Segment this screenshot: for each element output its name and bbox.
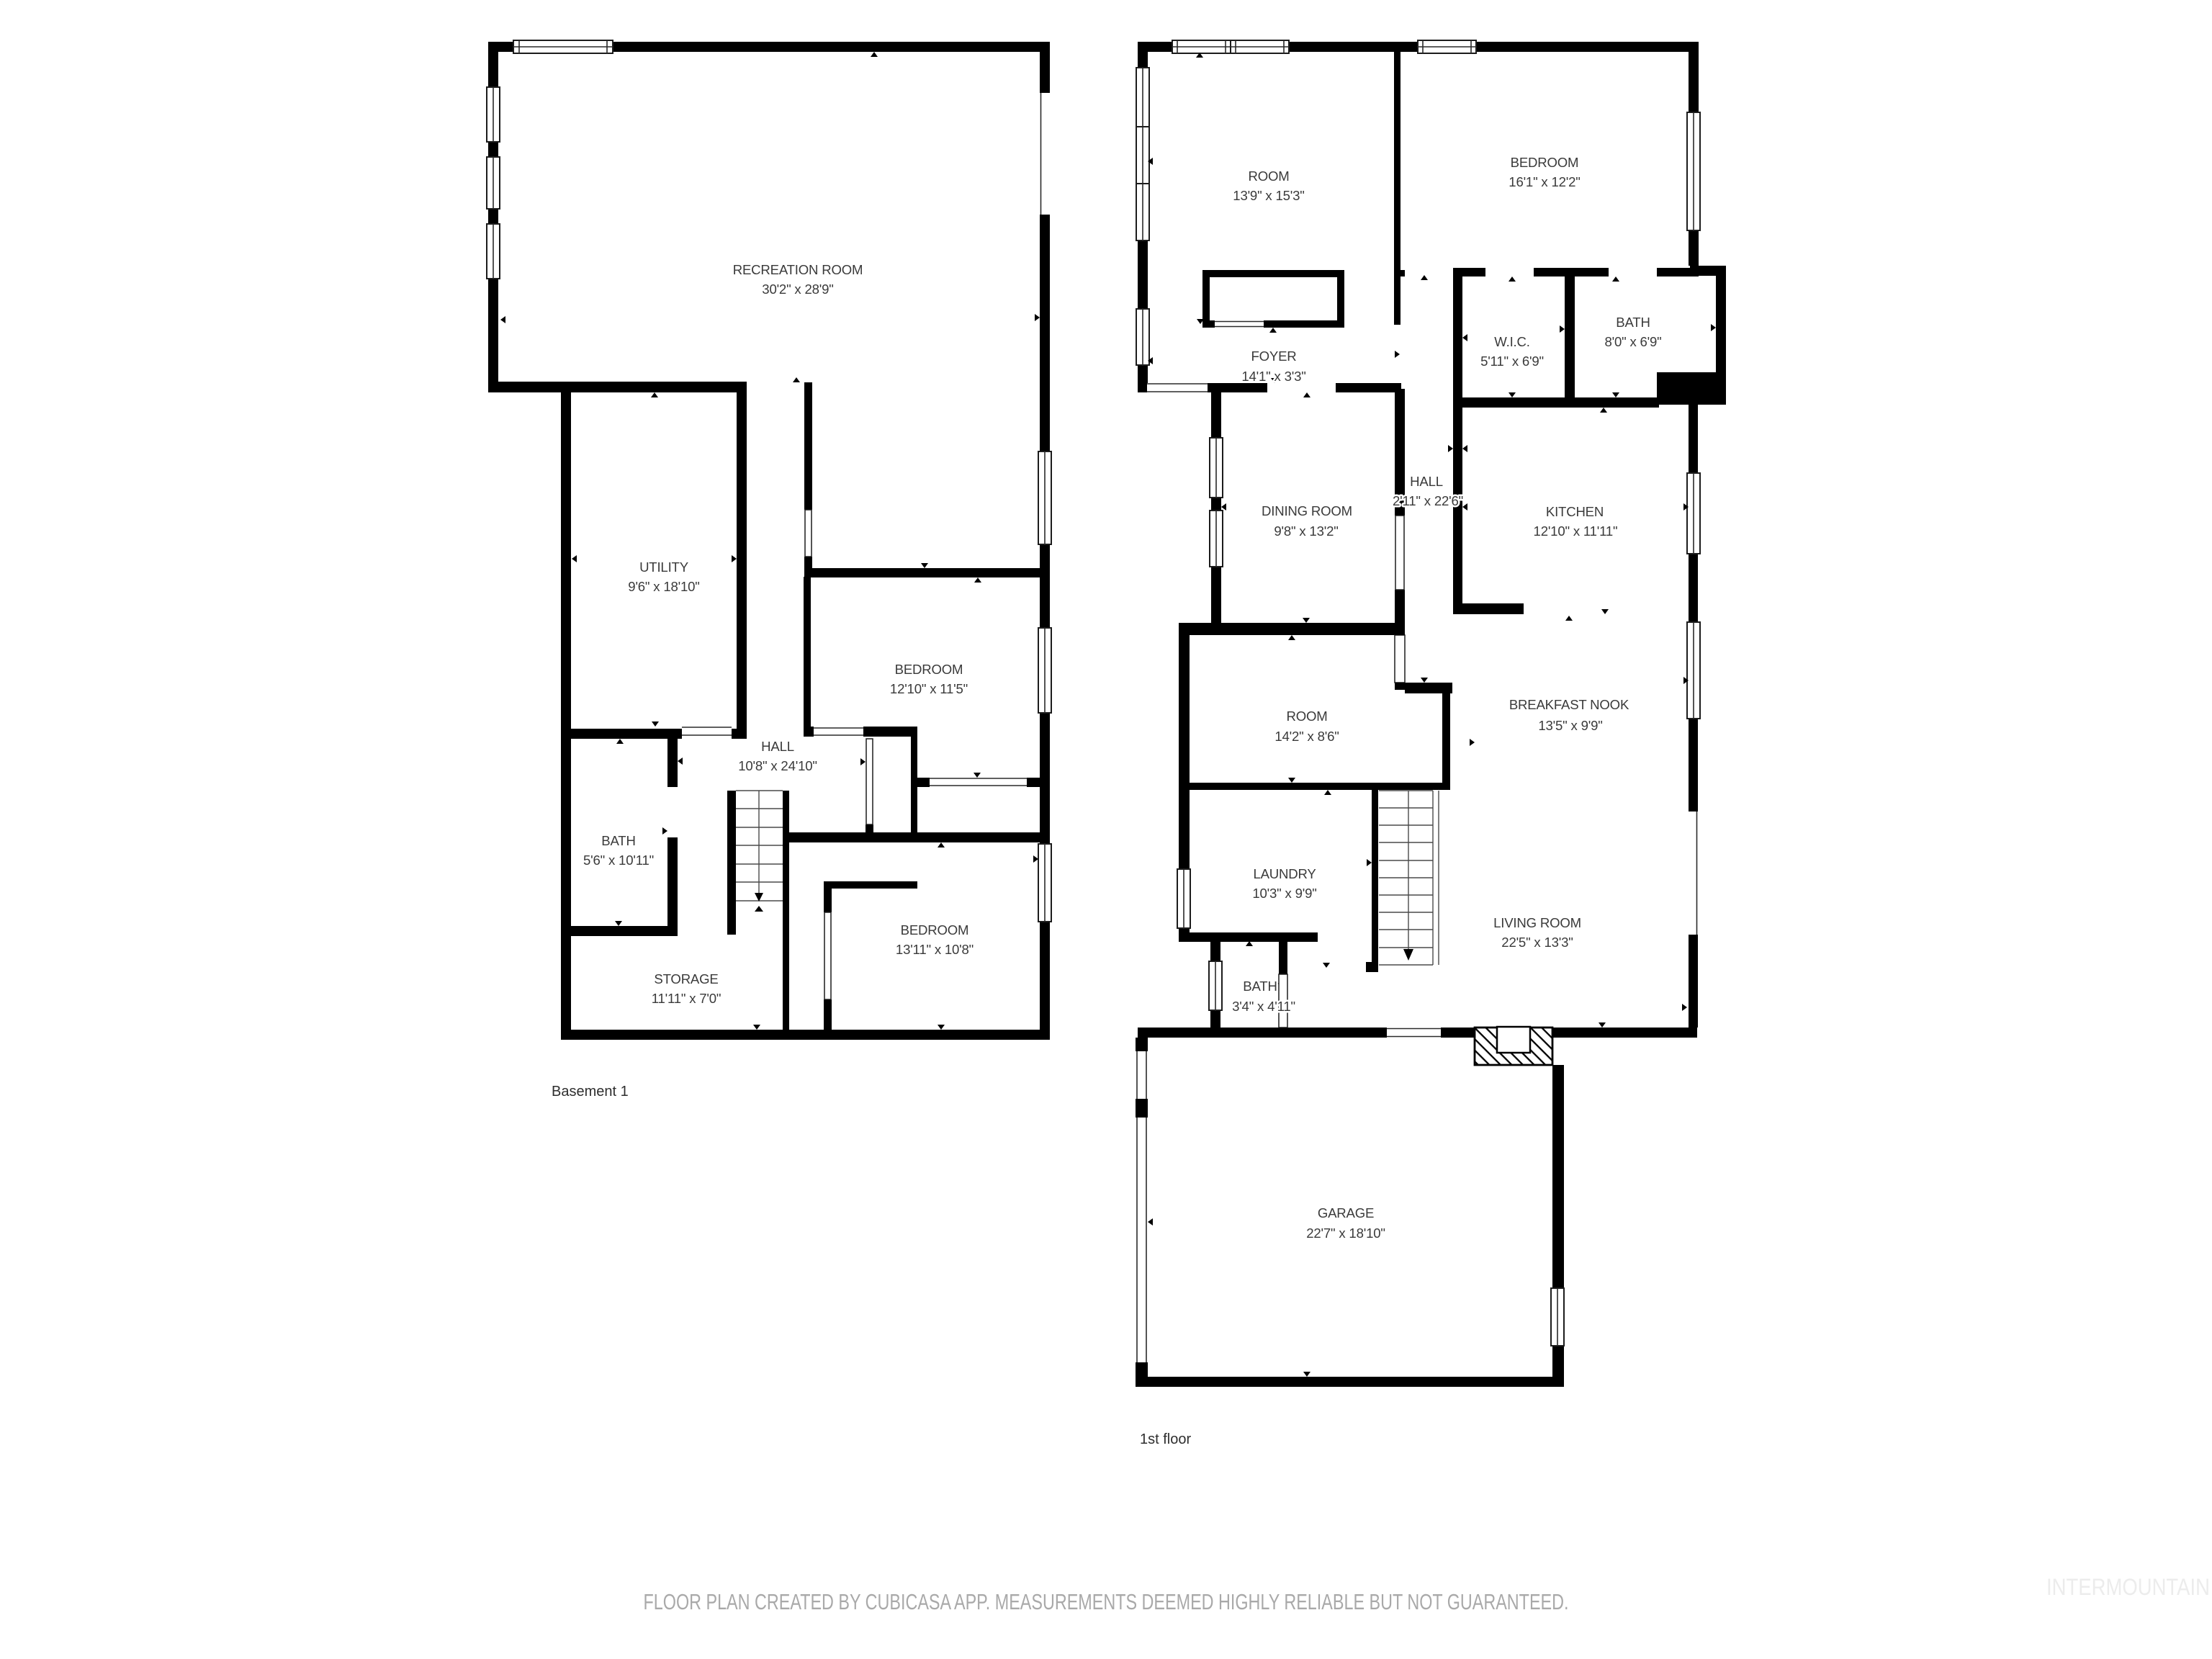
svg-text:FLOOR PLAN CREATED BY CUBICASA: FLOOR PLAN CREATED BY CUBICASA APP. MEAS… [644, 1589, 1569, 1614]
svg-text:13'11" x 10'8": 13'11" x 10'8" [896, 942, 974, 957]
svg-text:12'10" x 11'5": 12'10" x 11'5" [890, 681, 968, 696]
svg-text:12'10" x 11'11": 12'10" x 11'11" [1534, 523, 1618, 539]
svg-text:13'9" x 15'3": 13'9" x 15'3" [1233, 188, 1304, 203]
svg-text:UTILITY: UTILITY [639, 559, 688, 575]
svg-text:RECREATION ROOM: RECREATION ROOM [733, 262, 863, 277]
svg-text:22'5" x 13'3": 22'5" x 13'3" [1501, 935, 1573, 950]
svg-text:BATH: BATH [1243, 979, 1277, 994]
svg-text:30'2" x 28'9": 30'2" x 28'9" [762, 282, 833, 297]
svg-text:22'7" x 18'10": 22'7" x 18'10" [1306, 1226, 1385, 1241]
svg-text:1st floor: 1st floor [1140, 1431, 1191, 1447]
svg-text:INTERMOUNTAIN: INTERMOUNTAIN [2046, 1574, 2210, 1600]
svg-text:14'2" x 8'6": 14'2" x 8'6" [1274, 729, 1339, 744]
svg-text:3'4" x 4'11": 3'4" x 4'11" [1232, 999, 1295, 1014]
svg-text:HALL: HALL [1410, 474, 1443, 489]
svg-text:9'8" x 13'2": 9'8" x 13'2" [1274, 523, 1338, 539]
svg-text:STORAGE: STORAGE [654, 971, 718, 986]
svg-text:BEDROOM: BEDROOM [901, 922, 969, 938]
svg-text:5'11" x 6'9": 5'11" x 6'9" [1480, 354, 1544, 369]
svg-text:13'5" x 9'9": 13'5" x 9'9" [1538, 718, 1602, 733]
svg-text:DINING ROOM: DINING ROOM [1262, 503, 1352, 518]
svg-text:W.I.C.: W.I.C. [1494, 334, 1529, 349]
svg-text:LAUNDRY: LAUNDRY [1253, 866, 1316, 881]
svg-text:LIVING ROOM: LIVING ROOM [1493, 915, 1581, 930]
svg-text:GARAGE: GARAGE [1318, 1205, 1374, 1220]
svg-text:FOYER: FOYER [1251, 349, 1296, 364]
svg-text:ROOM: ROOM [1286, 709, 1327, 724]
svg-text:BEDROOM: BEDROOM [1511, 155, 1579, 170]
svg-text:9'6" x 18'10": 9'6" x 18'10" [628, 579, 699, 594]
svg-text:8'0" x 6'9": 8'0" x 6'9" [1604, 334, 1661, 349]
svg-text:HALL: HALL [761, 739, 794, 754]
svg-text:Basement 1: Basement 1 [552, 1084, 629, 1100]
svg-text:14'1" x 3'3": 14'1" x 3'3" [1241, 369, 1305, 384]
svg-text:11'11" x 7'0": 11'11" x 7'0" [652, 991, 721, 1006]
svg-text:5'6" x 10'11": 5'6" x 10'11" [583, 853, 654, 868]
svg-text:BREAKFAST NOOK: BREAKFAST NOOK [1509, 697, 1629, 712]
svg-text:BATH: BATH [601, 833, 635, 848]
svg-text:ROOM: ROOM [1248, 168, 1289, 184]
svg-text:10'3" x 9'9": 10'3" x 9'9" [1252, 886, 1316, 901]
svg-text:10'8" x 24'10": 10'8" x 24'10" [738, 758, 817, 773]
svg-text:16'1" x 12'2": 16'1" x 12'2" [1509, 174, 1580, 189]
svg-text:2'11" x 22'6": 2'11" x 22'6" [1393, 493, 1463, 508]
svg-text:BATH: BATH [1616, 315, 1650, 330]
svg-text:KITCHEN: KITCHEN [1546, 504, 1604, 519]
svg-text:BEDROOM: BEDROOM [895, 662, 963, 677]
